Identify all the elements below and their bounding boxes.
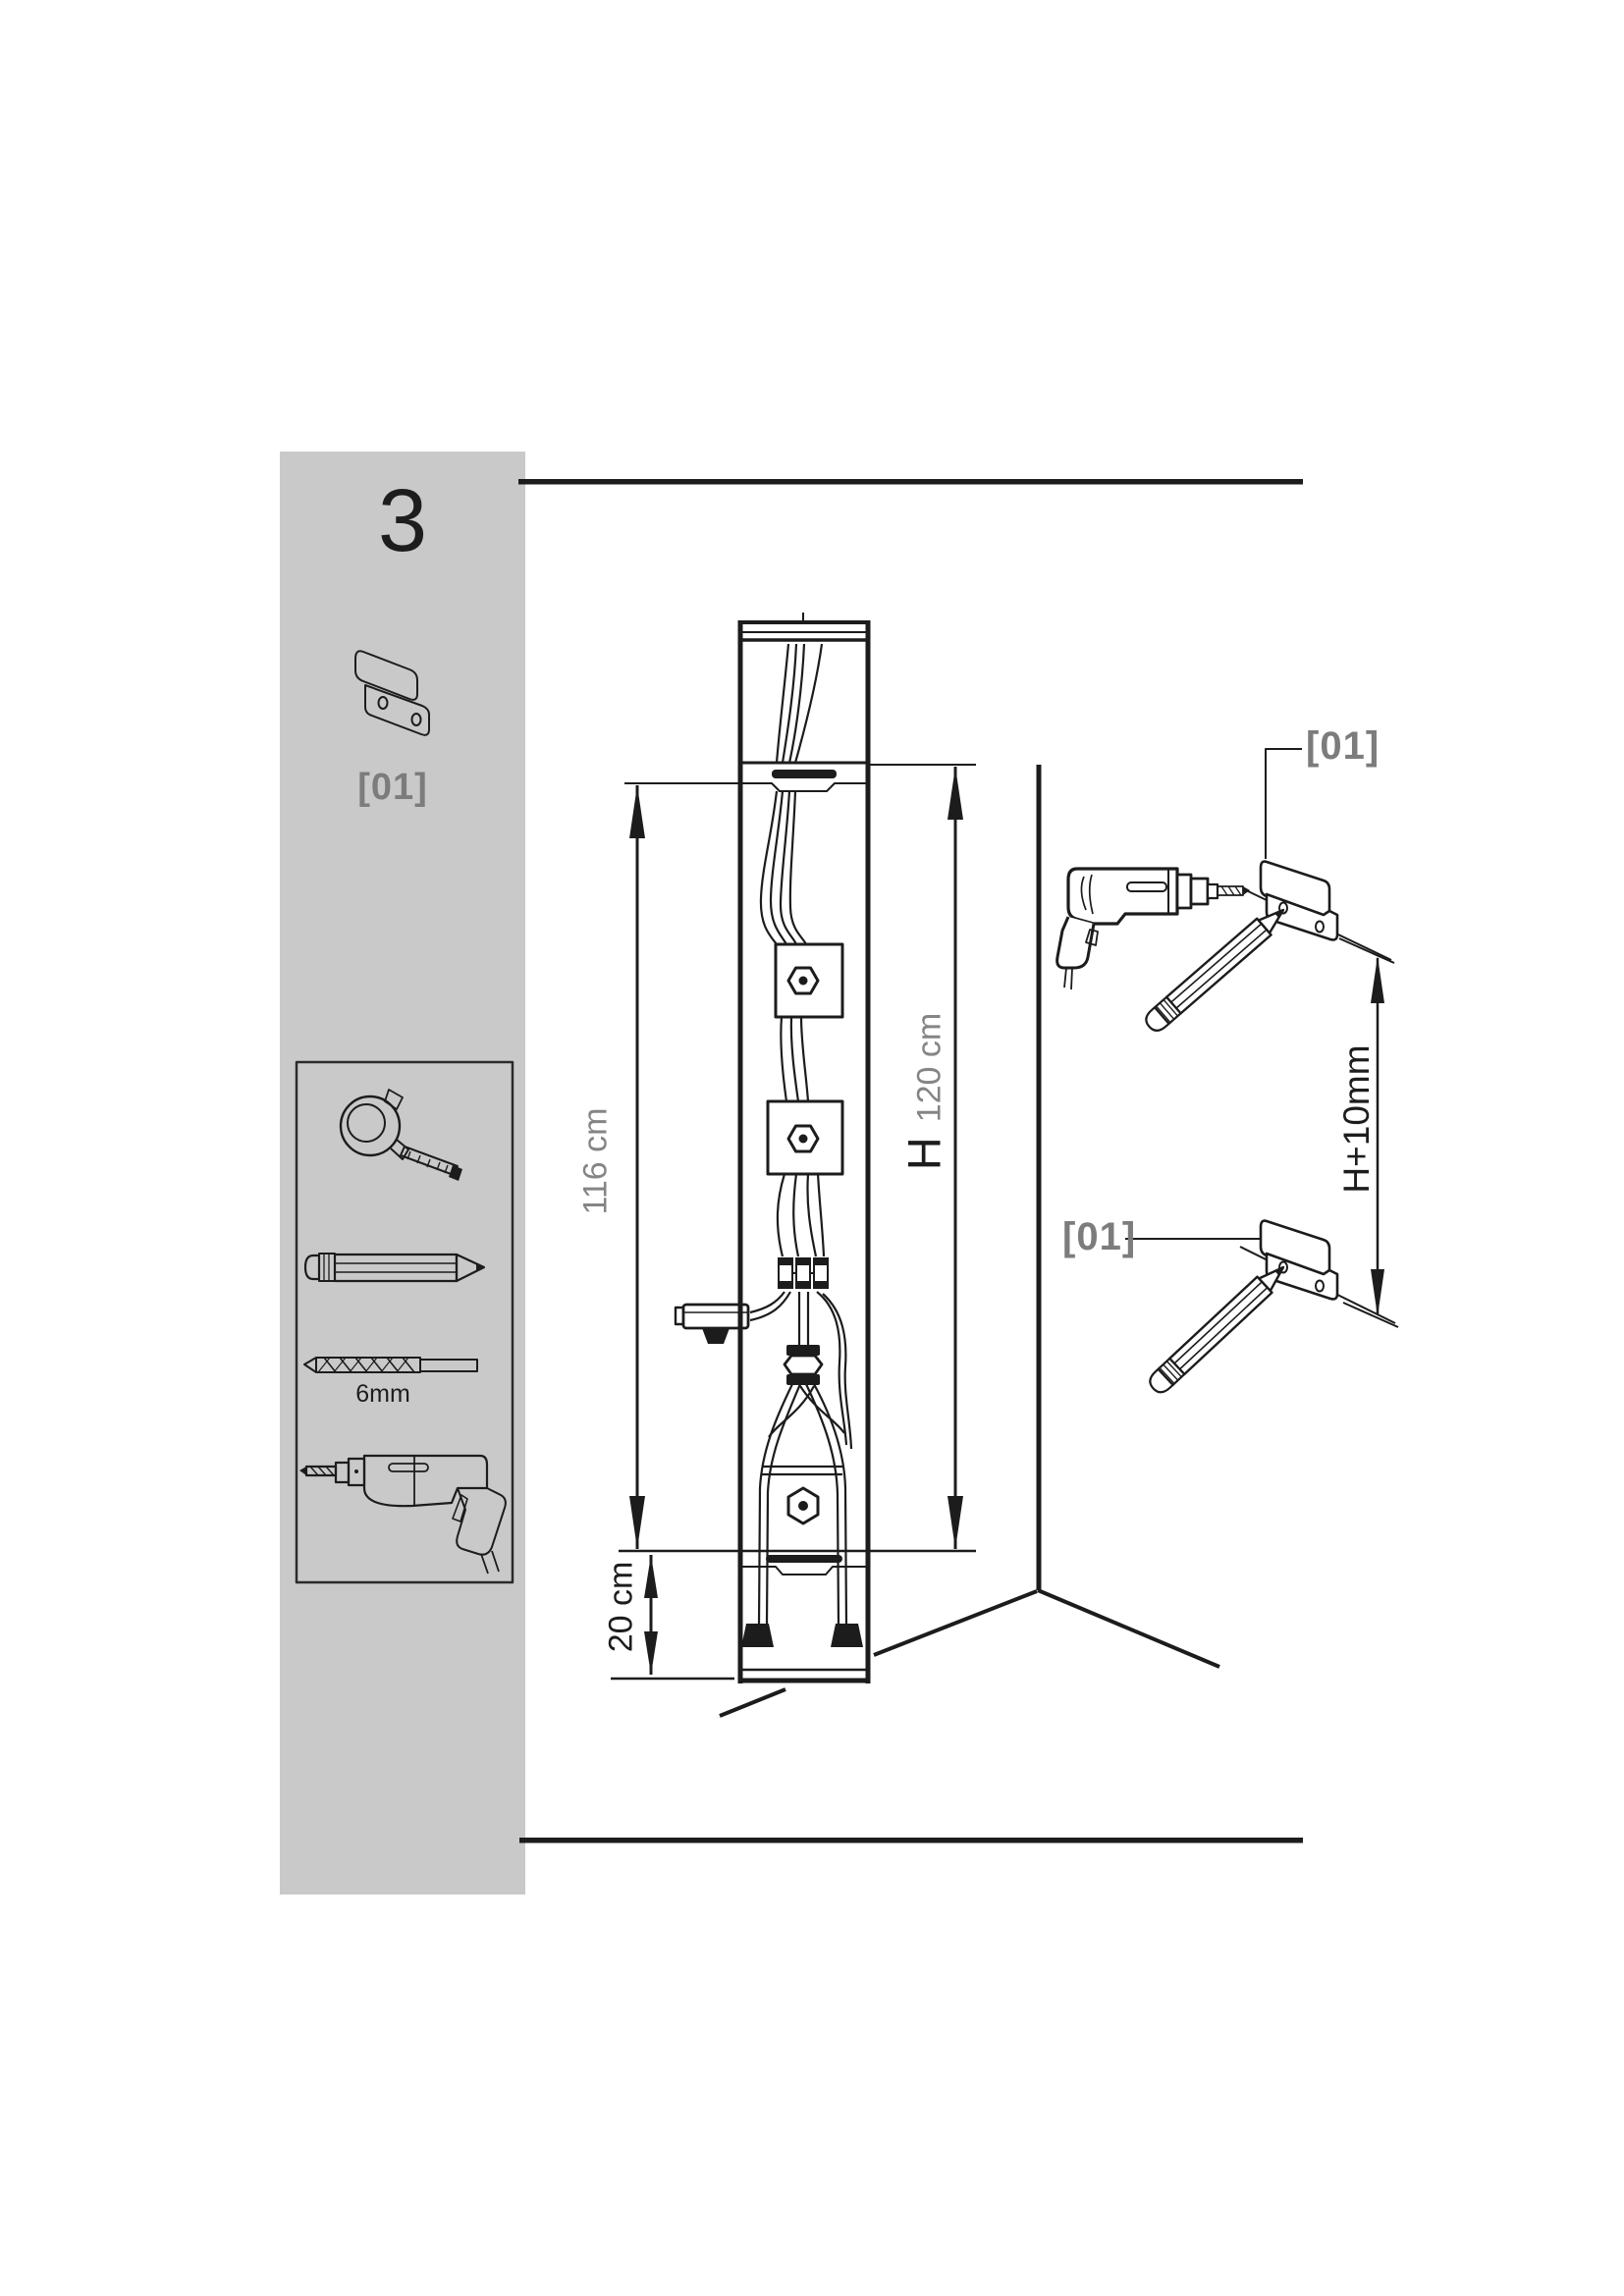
mixer-valve-icon	[785, 1345, 822, 1385]
wall-detail-top	[1057, 749, 1391, 1035]
wall-bracket-icon	[355, 651, 429, 735]
pencil-icon	[1142, 902, 1290, 1035]
drill-bit-icon	[304, 1358, 477, 1372]
pencil-icon	[1146, 1259, 1290, 1397]
dimension-label-116cm: 116 cm	[577, 1108, 616, 1215]
part-id-label: [01]	[329, 767, 457, 809]
top-rule	[518, 479, 1303, 485]
pencil-icon	[305, 1254, 484, 1281]
dimension-label-h: H	[897, 1137, 951, 1170]
bracket-top-id-label: [01]	[1306, 724, 1380, 769]
dimension-label-120cm: 120 cm	[911, 1013, 949, 1123]
hand-shower-icon	[676, 1305, 748, 1344]
power-drill-icon	[299, 1456, 506, 1574]
diagram-canvas	[0, 0, 1624, 2296]
tape-measure-icon	[341, 1090, 462, 1181]
drill-bit-size-label: 6mm	[324, 1380, 442, 1409]
shower-panel-drawing	[624, 613, 870, 1683]
dimension-label-h10mm: H+10mm	[1336, 1044, 1378, 1193]
bottom-rule	[519, 1838, 1303, 1843]
panel-body	[624, 613, 870, 1683]
tools-box	[297, 1062, 513, 1582]
dimension-label-20cm: 20 cm	[603, 1562, 641, 1653]
dimension-label-height: H 120 cm	[897, 1013, 951, 1170]
dimension-116cm	[629, 785, 645, 1549]
bracket-bottom-id-label: [01]	[1062, 1215, 1136, 1259]
instruction-page: 3 [01] 6mm 116 cm H 120 cm 20 cm H+10mm …	[0, 0, 1624, 2296]
panel-shelf-boxes	[768, 944, 842, 1174]
step-number: 3	[280, 477, 525, 565]
manifold-fittings	[778, 1257, 829, 1289]
